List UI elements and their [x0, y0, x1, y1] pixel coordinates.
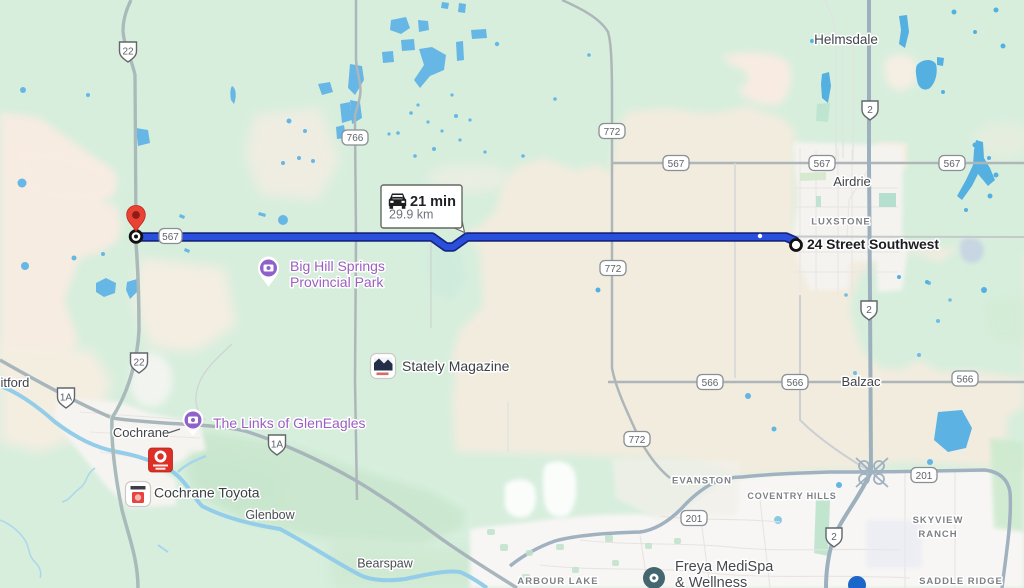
- svg-text:1A: 1A: [271, 440, 284, 451]
- svg-text:Cochrane Toyota: Cochrane Toyota: [154, 485, 260, 501]
- svg-text:766: 766: [347, 133, 364, 144]
- svg-text:Big Hill Springs: Big Hill Springs: [290, 258, 385, 274]
- svg-text:Balzac: Balzac: [841, 374, 881, 389]
- svg-text:772: 772: [604, 127, 621, 138]
- svg-text:& Wellness: & Wellness: [675, 575, 747, 588]
- svg-text:Airdrie: Airdrie: [833, 174, 871, 189]
- svg-text:2: 2: [866, 305, 872, 316]
- svg-text:772: 772: [629, 435, 646, 446]
- svg-text:566: 566: [787, 378, 804, 389]
- svg-text:567: 567: [944, 159, 961, 170]
- svg-text:24 Street Southwest: 24 Street Southwest: [807, 236, 939, 252]
- svg-text:RANCH: RANCH: [918, 529, 957, 540]
- svg-text:Stately Magazine: Stately Magazine: [402, 358, 510, 374]
- svg-text:Glenbow: Glenbow: [245, 508, 295, 522]
- svg-text:2: 2: [831, 532, 837, 543]
- svg-text:Bearspaw: Bearspaw: [357, 557, 414, 571]
- svg-text:29.9 km: 29.9 km: [389, 208, 433, 222]
- svg-text:22: 22: [122, 47, 134, 58]
- svg-text:567: 567: [162, 232, 179, 243]
- svg-text:1A: 1A: [60, 393, 73, 404]
- svg-text:SADDLE RIDGE: SADDLE RIDGE: [919, 576, 1003, 587]
- svg-text:566: 566: [702, 378, 719, 389]
- svg-text:201: 201: [686, 514, 703, 525]
- svg-text:567: 567: [814, 159, 831, 170]
- svg-text:COVENTRY HILLS: COVENTRY HILLS: [747, 491, 836, 501]
- svg-text:Provincial Park: Provincial Park: [290, 274, 384, 290]
- svg-text:22: 22: [133, 358, 145, 369]
- svg-text:567: 567: [668, 159, 685, 170]
- svg-text:ARBOUR LAKE: ARBOUR LAKE: [517, 576, 598, 587]
- svg-text:EVANSTON: EVANSTON: [672, 476, 732, 487]
- svg-text:SKYVIEW: SKYVIEW: [913, 515, 964, 526]
- svg-text:Cochrane: Cochrane: [113, 425, 169, 440]
- svg-text:772: 772: [605, 264, 622, 275]
- svg-text:Freya MediSpa: Freya MediSpa: [675, 559, 774, 575]
- svg-text:LUXSTONE: LUXSTONE: [811, 217, 871, 228]
- svg-text:itford: itford: [1, 375, 30, 390]
- svg-text:The Links of GlenEagles: The Links of GlenEagles: [213, 415, 366, 431]
- svg-text:566: 566: [957, 375, 974, 386]
- svg-text:201: 201: [916, 471, 933, 482]
- svg-text:2: 2: [867, 105, 873, 116]
- svg-text:Helmsdale: Helmsdale: [814, 32, 878, 47]
